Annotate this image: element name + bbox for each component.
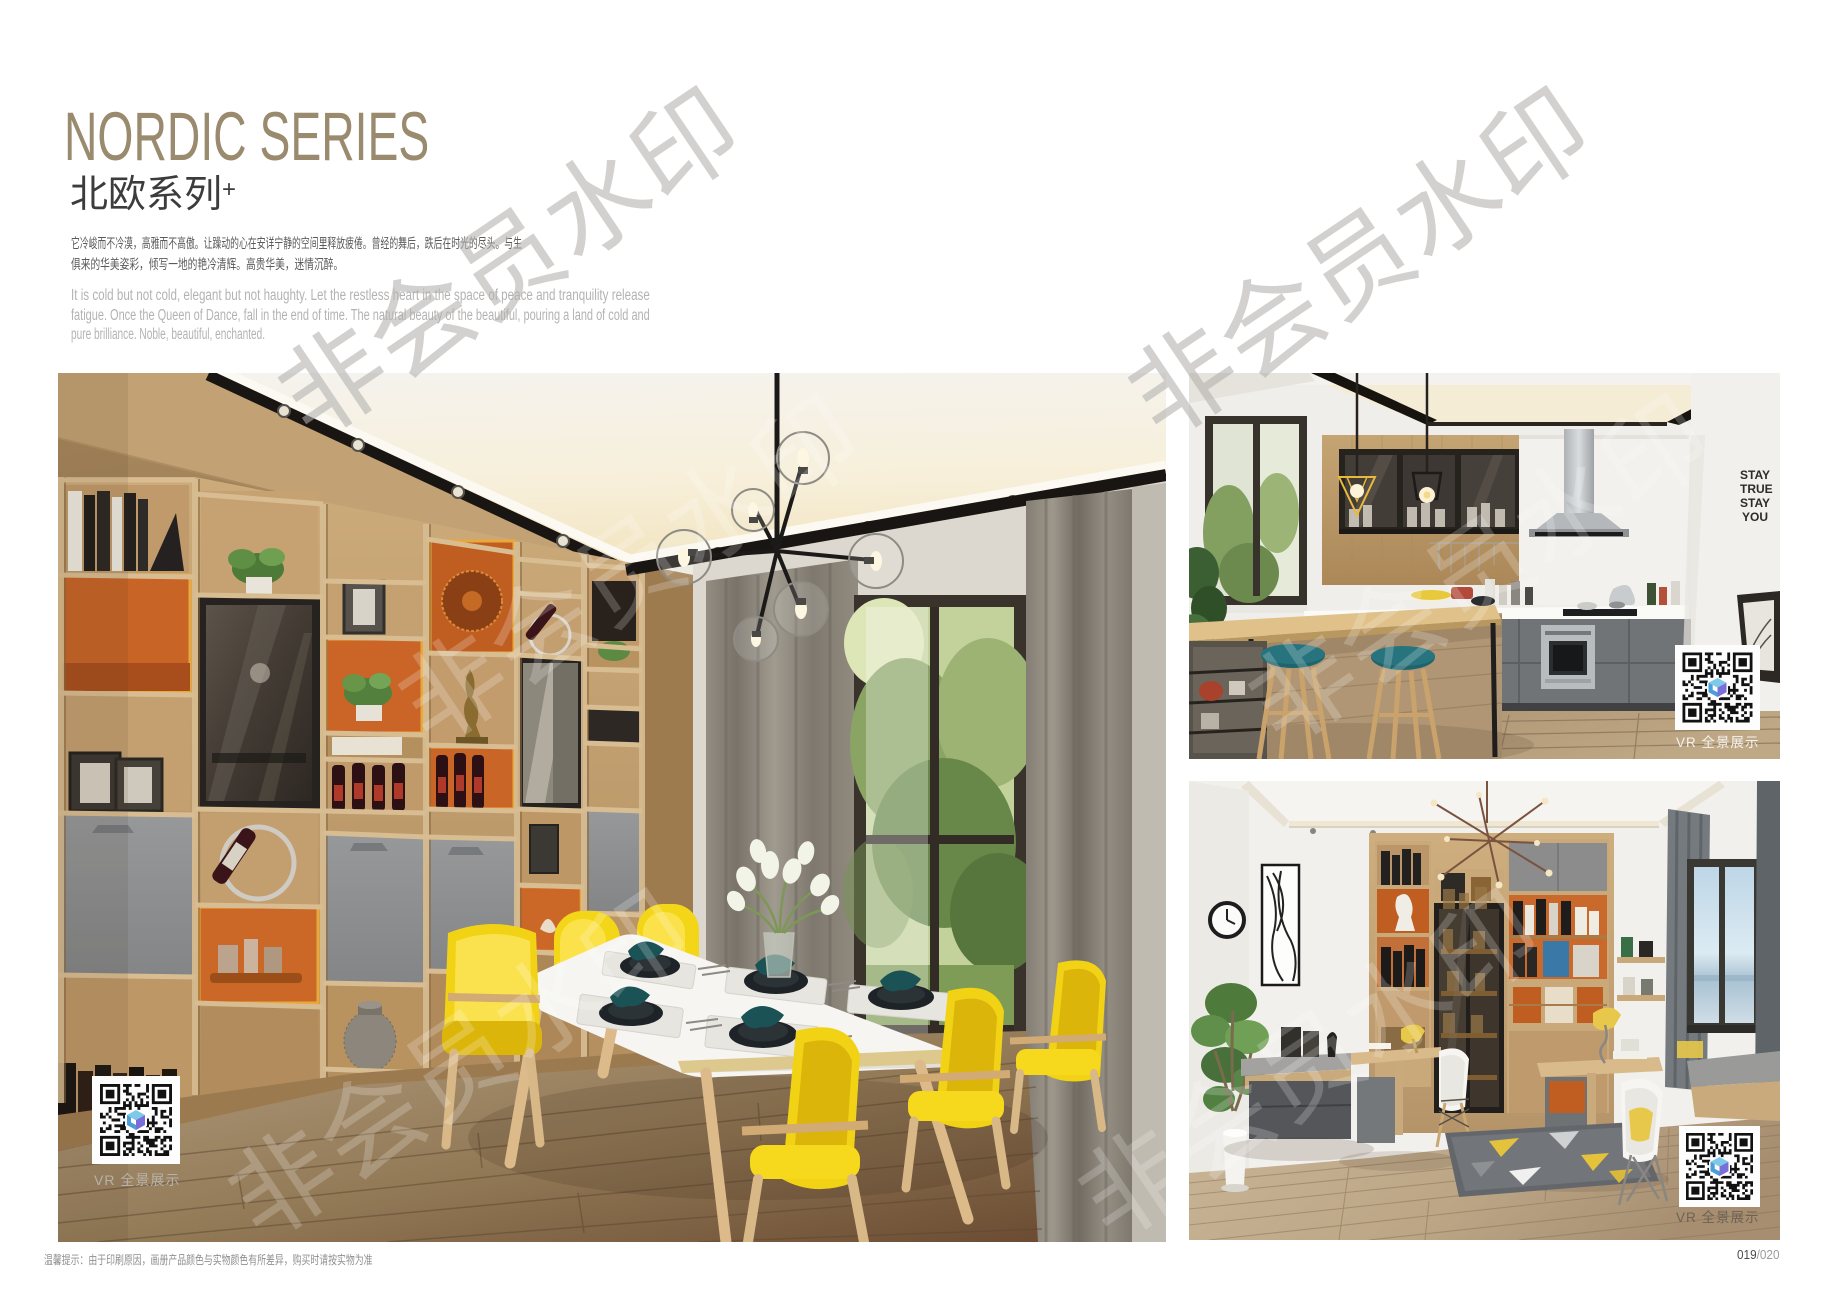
svg-text:VR 全景展示: VR 全景展示 <box>94 1172 180 1188</box>
svg-text:VR 全景展示: VR 全景展示 <box>1676 1209 1760 1225</box>
svg-text:STAY: STAY <box>1740 496 1770 510</box>
svg-text:YOU: YOU <box>1742 510 1768 524</box>
svg-text:VR 全景展示: VR 全景展示 <box>1676 734 1760 750</box>
svg-text:STAY: STAY <box>1740 468 1770 482</box>
svg-text:TRUE: TRUE <box>1740 482 1773 496</box>
